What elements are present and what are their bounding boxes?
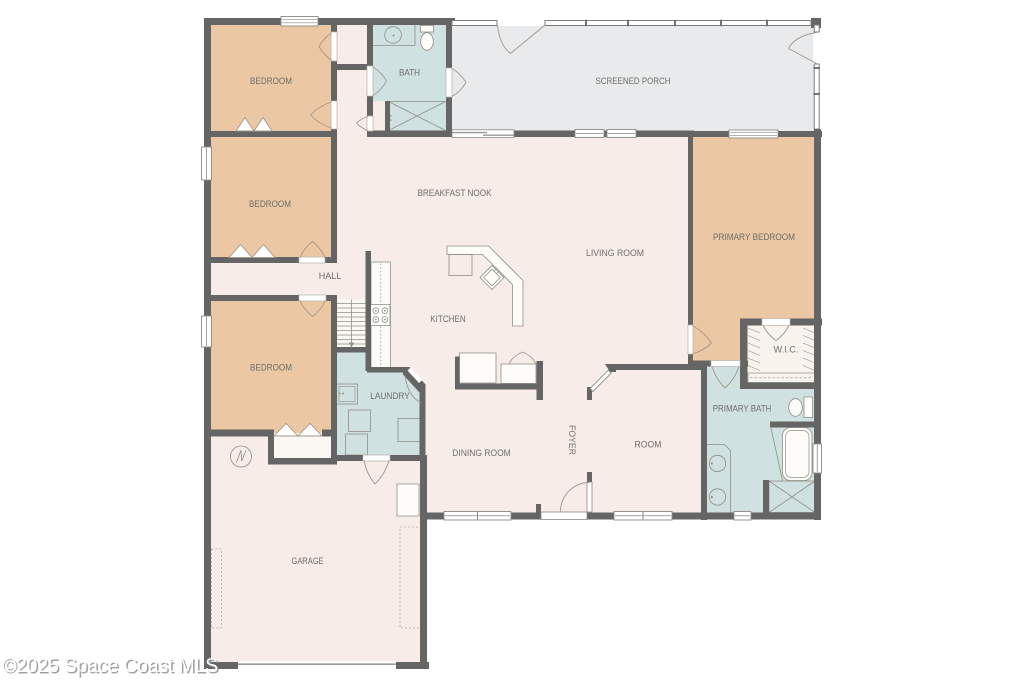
svg-text:LAUNDRY: LAUNDRY xyxy=(370,391,410,402)
svg-text:BEDROOM: BEDROOM xyxy=(249,199,291,210)
svg-text:LIVING ROOM: LIVING ROOM xyxy=(586,248,644,259)
svg-text:HALL: HALL xyxy=(319,271,342,282)
svg-text:BATH: BATH xyxy=(399,68,420,79)
svg-text:PRIMARY BEDROOM: PRIMARY BEDROOM xyxy=(713,232,795,243)
svg-text:BREAKFAST NOOK: BREAKFAST NOOK xyxy=(418,188,493,199)
svg-text:BEDROOM: BEDROOM xyxy=(250,363,292,374)
svg-text:DINING ROOM: DINING ROOM xyxy=(452,448,511,459)
svg-text:KITCHEN: KITCHEN xyxy=(430,314,466,325)
svg-text:W.I.C.: W.I.C. xyxy=(774,345,799,356)
svg-text:GARAGE: GARAGE xyxy=(292,556,324,567)
svg-text:FOYER: FOYER xyxy=(566,425,577,455)
svg-text:©2025 Space Coast MLS: ©2025 Space Coast MLS xyxy=(2,654,218,677)
svg-text:ROOM: ROOM xyxy=(635,440,662,451)
svg-text:SCREENED PORCH: SCREENED PORCH xyxy=(596,76,671,87)
svg-text:BEDROOM: BEDROOM xyxy=(250,76,292,87)
svg-text:PRIMARY BATH: PRIMARY BATH xyxy=(713,404,772,415)
